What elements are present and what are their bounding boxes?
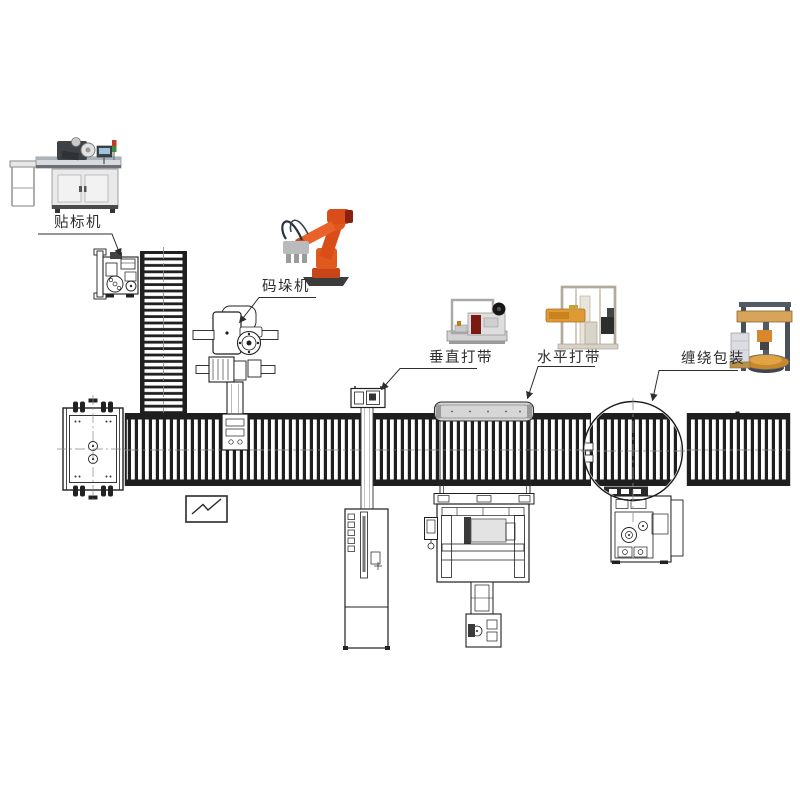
callout-horizontal-strapper-leader (528, 367, 596, 399)
packaging-line-diagram: 贴标机 码垛机 垂直打带 水平打带 缠绕包装 (0, 0, 800, 800)
callout-horizontal-strapper-label: 水平打带 (537, 351, 601, 366)
labeling-machine-photo (10, 138, 121, 214)
palletizing-robot-photo (282, 209, 353, 286)
horizontal-strapping-machine-photo (546, 287, 618, 349)
infeed-turntable-cad (57, 395, 129, 503)
flow-direction-symbol (186, 496, 227, 522)
callout-labeler-leader (38, 234, 121, 256)
vertical-conveyor-cad (140, 247, 187, 416)
callout-vertical-strapper-leader (382, 369, 478, 390)
outfeed-conveyor-cad (687, 412, 790, 487)
main-conveyor-cad (125, 413, 591, 486)
callout-vertical-strapper-label: 垂直打带 (429, 351, 493, 366)
callout-wrapper-label: 缠绕包装 (681, 352, 745, 367)
diagram-canvas (0, 0, 800, 800)
vertical-strapping-machine-photo (447, 300, 507, 344)
callout-labeler-label: 贴标机 (54, 216, 102, 231)
labeling-machine-cad (94, 249, 138, 299)
callout-palletizer-label: 码垛机 (262, 280, 310, 295)
wrapper-machine-cad (611, 496, 683, 564)
callout-wrapper-leader (653, 371, 739, 401)
